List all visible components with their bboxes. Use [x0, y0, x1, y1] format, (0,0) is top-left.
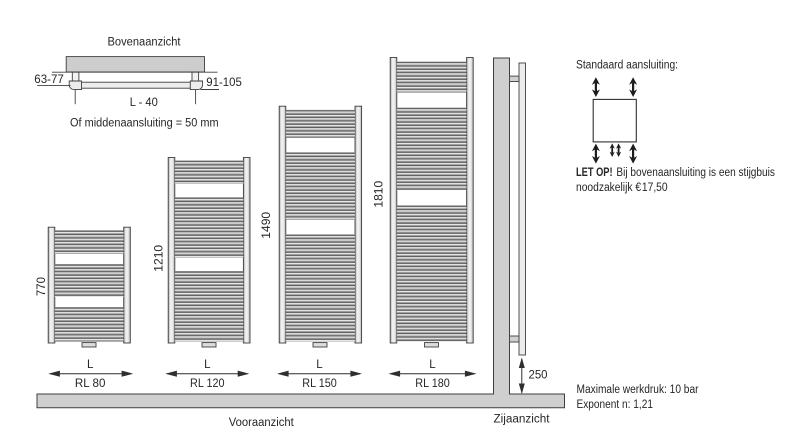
svg-text:L: L: [87, 359, 94, 371]
svg-text:1210: 1210: [153, 245, 165, 272]
svg-text:770: 770: [36, 277, 48, 296]
svg-text:RL 180: RL 180: [415, 378, 450, 390]
svg-text:Of middenaansluiting = 50 mm: Of middenaansluiting = 50 mm: [70, 117, 219, 129]
svg-text:91-105: 91-105: [206, 77, 242, 89]
svg-text:RL 150: RL 150: [302, 378, 337, 390]
svg-text:RL 120: RL 120: [190, 378, 225, 390]
svg-text:63-77: 63-77: [34, 74, 64, 86]
svg-text:Standaard aansluiting:: Standaard aansluiting:: [576, 60, 678, 72]
svg-text:L - 40: L - 40: [130, 97, 158, 109]
svg-text:1490: 1490: [261, 212, 273, 239]
svg-text:noodzakelijk € 17,50: noodzakelijk € 17,50: [576, 182, 668, 194]
svg-text:LET OP!: LET OP!: [576, 167, 613, 179]
svg-text:RL 80: RL 80: [75, 378, 106, 390]
svg-text:250: 250: [529, 369, 548, 381]
svg-text:L: L: [429, 359, 436, 371]
svg-text:Exponent n: 1,21: Exponent n: 1,21: [577, 399, 654, 411]
svg-text:Bovenaanzicht: Bovenaanzicht: [108, 37, 182, 49]
svg-text:Zijaanzicht: Zijaanzicht: [494, 414, 551, 426]
svg-text:L: L: [316, 359, 323, 371]
svg-text:L: L: [204, 359, 211, 371]
svg-text:Maximale werkdruk: 10 bar: Maximale werkdruk: 10 bar: [577, 384, 699, 396]
svg-text:Vooraanzicht: Vooraanzicht: [229, 417, 295, 429]
svg-text:Bij bovenaansluiting is een st: Bij bovenaansluiting is een stijgbuis: [616, 167, 775, 179]
svg-text:1810: 1810: [373, 181, 385, 208]
